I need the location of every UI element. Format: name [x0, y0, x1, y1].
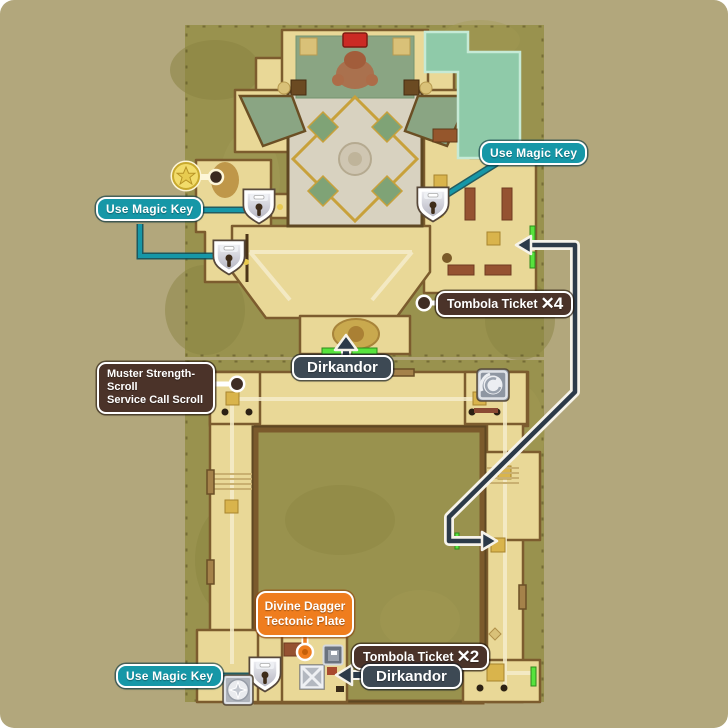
label-dirkandor-south-exit: Dirkandor — [361, 664, 462, 689]
throne-room — [278, 33, 432, 98]
crate-icon — [300, 665, 324, 689]
label-dirkandor-north-exit: Dirkandor — [292, 355, 393, 380]
mini-medal-icon — [171, 161, 202, 192]
scrolls-spot-dot — [230, 377, 244, 391]
compass-crest-icon — [223, 675, 253, 705]
lock-icon-upper-southwest — [216, 243, 242, 272]
lock-icon-lower-southwest — [252, 660, 278, 689]
spiral-portal-icon — [477, 369, 509, 401]
label-use-magic-key-south: Use Magic Key — [116, 664, 223, 688]
exit-marker-lower-east — [531, 667, 536, 686]
tombola-lower-count: ✕2 — [457, 647, 479, 667]
medal-spot-dot — [209, 170, 223, 184]
lock-icon-upper-east — [420, 190, 446, 219]
label-scroll-treasures: Muster Strength- Scroll Service Call Scr… — [97, 362, 215, 414]
label-tombola-ticket-x4: Tombola Ticket ✕4 — [436, 291, 573, 317]
label-use-magic-key-west: Use Magic Key — [96, 197, 203, 221]
door-tile-icon — [324, 646, 343, 665]
lock-icon-upper-west — [246, 192, 272, 221]
label-use-magic-key-east: Use Magic Key — [480, 141, 587, 165]
label-divine-dagger-tectonic-plate: Divine Dagger Tectonic Plate — [256, 591, 354, 637]
tombola-upper-text: Tombola Ticket — [447, 297, 538, 311]
throne-icon — [343, 33, 367, 47]
tombola-upper-count: ✕4 — [541, 294, 563, 314]
tombola-lower-text: Tombola Ticket — [363, 650, 454, 664]
tombola-upper-spot-dot — [417, 296, 431, 310]
dungeon-map-page: Use Magic Key Use Magic Key Use Magic Ke… — [0, 0, 728, 728]
